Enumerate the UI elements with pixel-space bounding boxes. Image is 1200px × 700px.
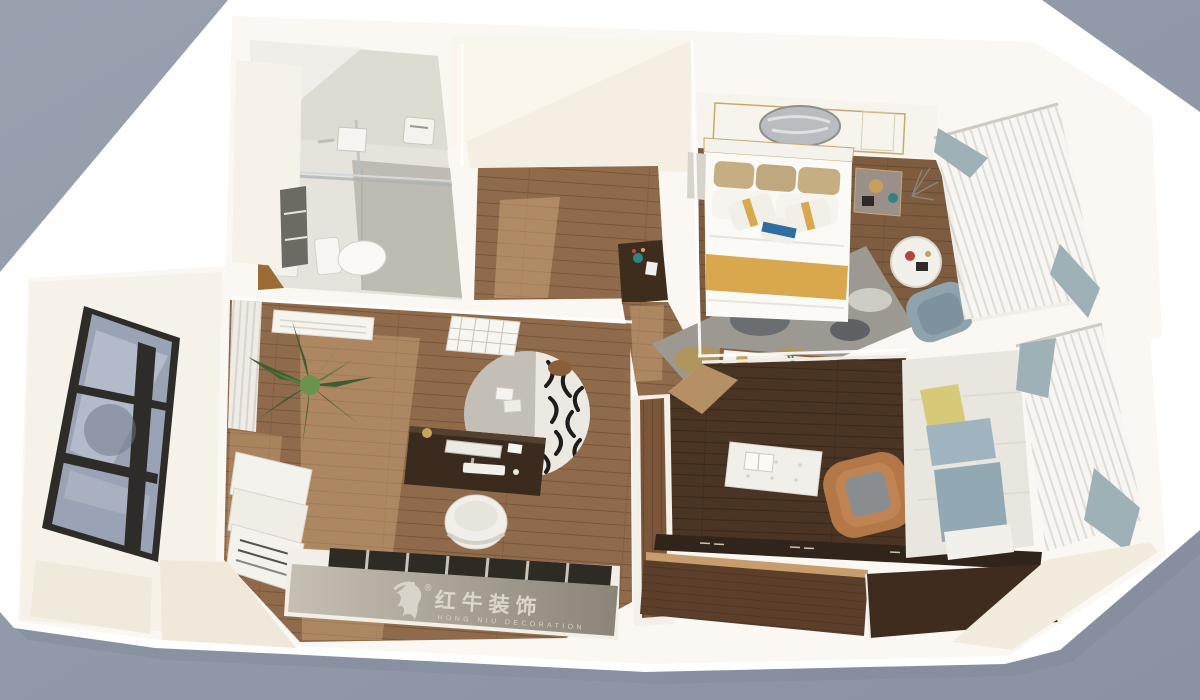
mouse	[513, 469, 519, 475]
entry-console	[618, 240, 668, 304]
tufted-ottoman	[725, 442, 822, 496]
study-room: ® 红牛装饰 HONG NIU DECORATION	[160, 300, 632, 648]
gold-clock	[869, 179, 883, 193]
desk-lamp	[422, 428, 432, 438]
bathroom	[232, 40, 462, 300]
desk-chair	[445, 495, 507, 549]
pillow-tan	[713, 161, 755, 190]
floorplan-render-canvas: ® 红牛装饰 HONG NIU DECORATION	[0, 0, 1200, 700]
book	[495, 387, 513, 401]
lattice-screen	[446, 316, 520, 356]
teal-vase	[633, 253, 643, 263]
pillow-tan	[755, 164, 797, 193]
open-book	[744, 452, 774, 472]
book	[504, 399, 522, 412]
teal-vase	[888, 193, 898, 203]
daybed-window-seat	[902, 350, 1034, 560]
wood-slice-decor	[548, 360, 572, 376]
registered-mark: ®	[423, 583, 433, 594]
water-heater	[403, 117, 435, 146]
picture-frame	[645, 261, 658, 275]
bed	[704, 138, 854, 322]
sheer-curtain-left	[228, 300, 262, 432]
glass-reflection	[84, 404, 136, 456]
side-table-round	[891, 237, 941, 287]
pillow-tan	[797, 167, 841, 196]
desk	[404, 426, 546, 496]
apartment-3d-floorplan: ® 红牛装饰 HONG NIU DECORATION	[0, 0, 1200, 700]
alcove-window	[280, 186, 308, 268]
round-mirror	[760, 106, 840, 146]
living-room	[632, 324, 1158, 650]
pillow-blue	[926, 418, 996, 466]
